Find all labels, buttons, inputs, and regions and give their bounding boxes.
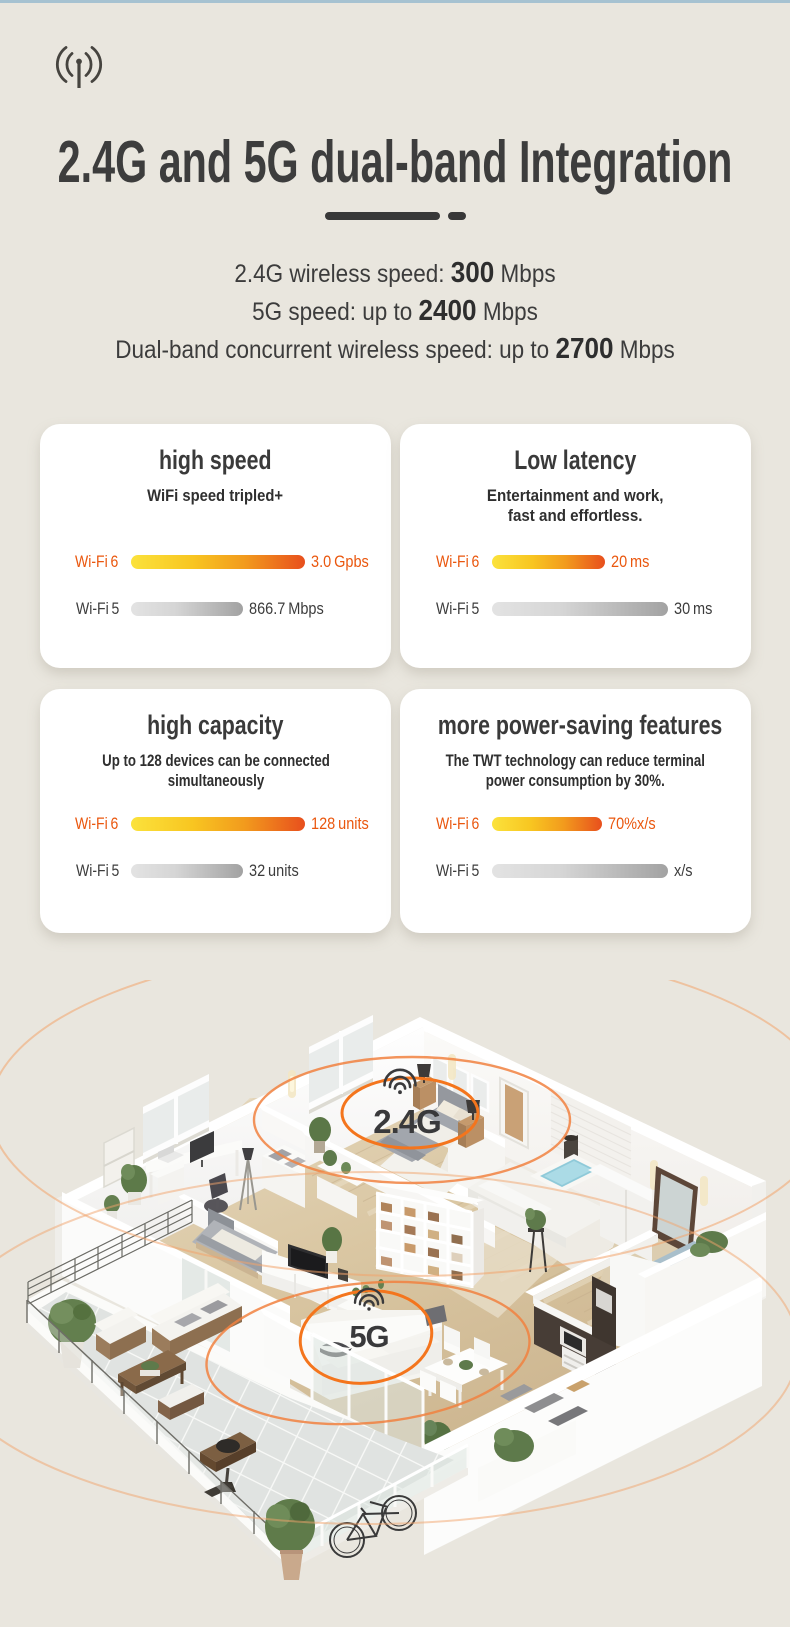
svg-text:5G: 5G	[349, 1319, 388, 1354]
svg-text:2.4G: 2.4G	[373, 1103, 441, 1140]
